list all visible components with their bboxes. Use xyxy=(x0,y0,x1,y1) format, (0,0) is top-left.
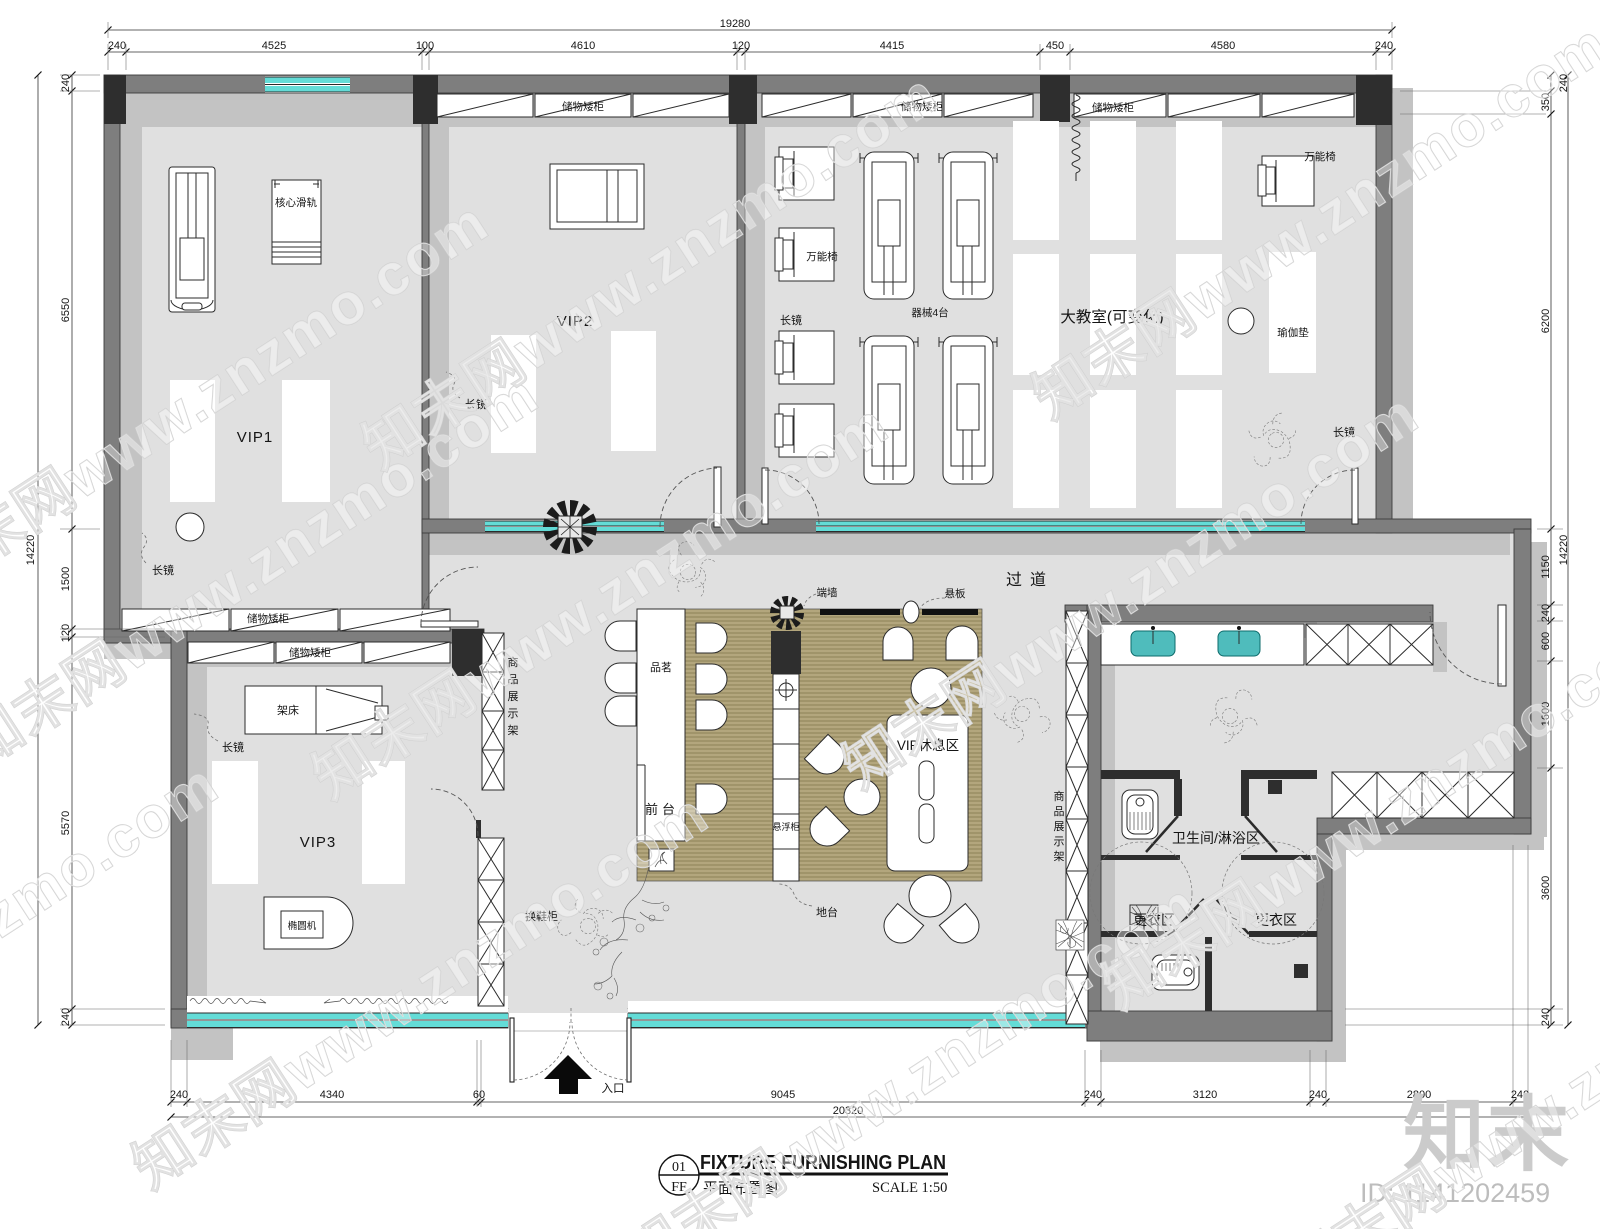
svg-text:240: 240 xyxy=(1084,1089,1102,1101)
svg-text:240: 240 xyxy=(1540,604,1552,622)
svg-text:4525: 4525 xyxy=(262,40,286,52)
svg-text:240: 240 xyxy=(1309,1089,1327,1101)
svg-text:入口: 入口 xyxy=(602,1082,625,1095)
svg-text:储物矮柜: 储物矮柜 xyxy=(562,100,604,113)
svg-text:240: 240 xyxy=(108,40,126,52)
svg-text:卫生间/淋浴区: 卫生间/淋浴区 xyxy=(1172,830,1260,846)
svg-text:9045: 9045 xyxy=(771,1089,795,1101)
svg-text:4415: 4415 xyxy=(880,40,904,52)
svg-text:600: 600 xyxy=(1540,632,1552,650)
svg-text:长镜: 长镜 xyxy=(152,563,174,577)
svg-text:3600: 3600 xyxy=(1540,876,1552,900)
svg-text:240: 240 xyxy=(1540,1008,1552,1026)
svg-text:240: 240 xyxy=(60,74,72,92)
svg-text:100: 100 xyxy=(416,40,434,52)
svg-text:6200: 6200 xyxy=(1540,309,1552,333)
svg-text:SCALE 1:50: SCALE 1:50 xyxy=(872,1180,947,1196)
svg-text:万能椅: 万能椅 xyxy=(806,250,838,263)
svg-text:储物矮柜: 储物矮柜 xyxy=(247,612,289,625)
svg-text:14220: 14220 xyxy=(1558,535,1570,566)
svg-text:储物矮柜: 储物矮柜 xyxy=(1092,101,1134,114)
svg-text:商品展示架: 商品展示架 xyxy=(1054,789,1065,863)
svg-text:悬浮柜: 悬浮柜 xyxy=(772,821,799,832)
svg-text:长镜: 长镜 xyxy=(222,740,244,754)
svg-text:01: 01 xyxy=(672,1160,686,1175)
svg-text:过道: 过道 xyxy=(1006,571,1054,589)
svg-text:19280: 19280 xyxy=(720,18,751,30)
svg-text:长镜: 长镜 xyxy=(780,313,802,327)
svg-text:1500: 1500 xyxy=(60,567,72,591)
svg-text:6550: 6550 xyxy=(60,298,72,322)
svg-text:1150: 1150 xyxy=(1540,555,1552,579)
svg-text:万能椅: 万能椅 xyxy=(1304,150,1336,163)
svg-text:储物矮柜: 储物矮柜 xyxy=(289,646,331,659)
svg-text:240: 240 xyxy=(60,1008,72,1026)
svg-text:核心滑轨: 核心滑轨 xyxy=(275,196,317,209)
svg-text:器械4台: 器械4台 xyxy=(911,306,948,319)
svg-text:架床: 架床 xyxy=(277,703,299,717)
svg-text:VIP3: VIP3 xyxy=(300,834,337,851)
svg-text:60: 60 xyxy=(473,1089,485,1101)
svg-text:4610: 4610 xyxy=(571,40,595,52)
svg-text:瑜伽垫: 瑜伽垫 xyxy=(1277,326,1309,339)
svg-text:VIP1: VIP1 xyxy=(237,429,274,446)
svg-text:悬板: 悬板 xyxy=(945,587,966,600)
svg-text:4580: 4580 xyxy=(1211,40,1235,52)
svg-text:240: 240 xyxy=(1375,40,1393,52)
svg-text:3120: 3120 xyxy=(1193,1089,1217,1101)
svg-text:450: 450 xyxy=(1046,40,1064,52)
svg-text:椭圆机: 椭圆机 xyxy=(288,920,317,932)
svg-text:120: 120 xyxy=(732,40,750,52)
svg-text:端墙: 端墙 xyxy=(817,586,838,599)
svg-text:240: 240 xyxy=(170,1089,188,1101)
svg-text:地台: 地台 xyxy=(816,905,838,919)
svg-text:品茗: 品茗 xyxy=(650,661,672,674)
svg-text:120: 120 xyxy=(60,624,72,642)
